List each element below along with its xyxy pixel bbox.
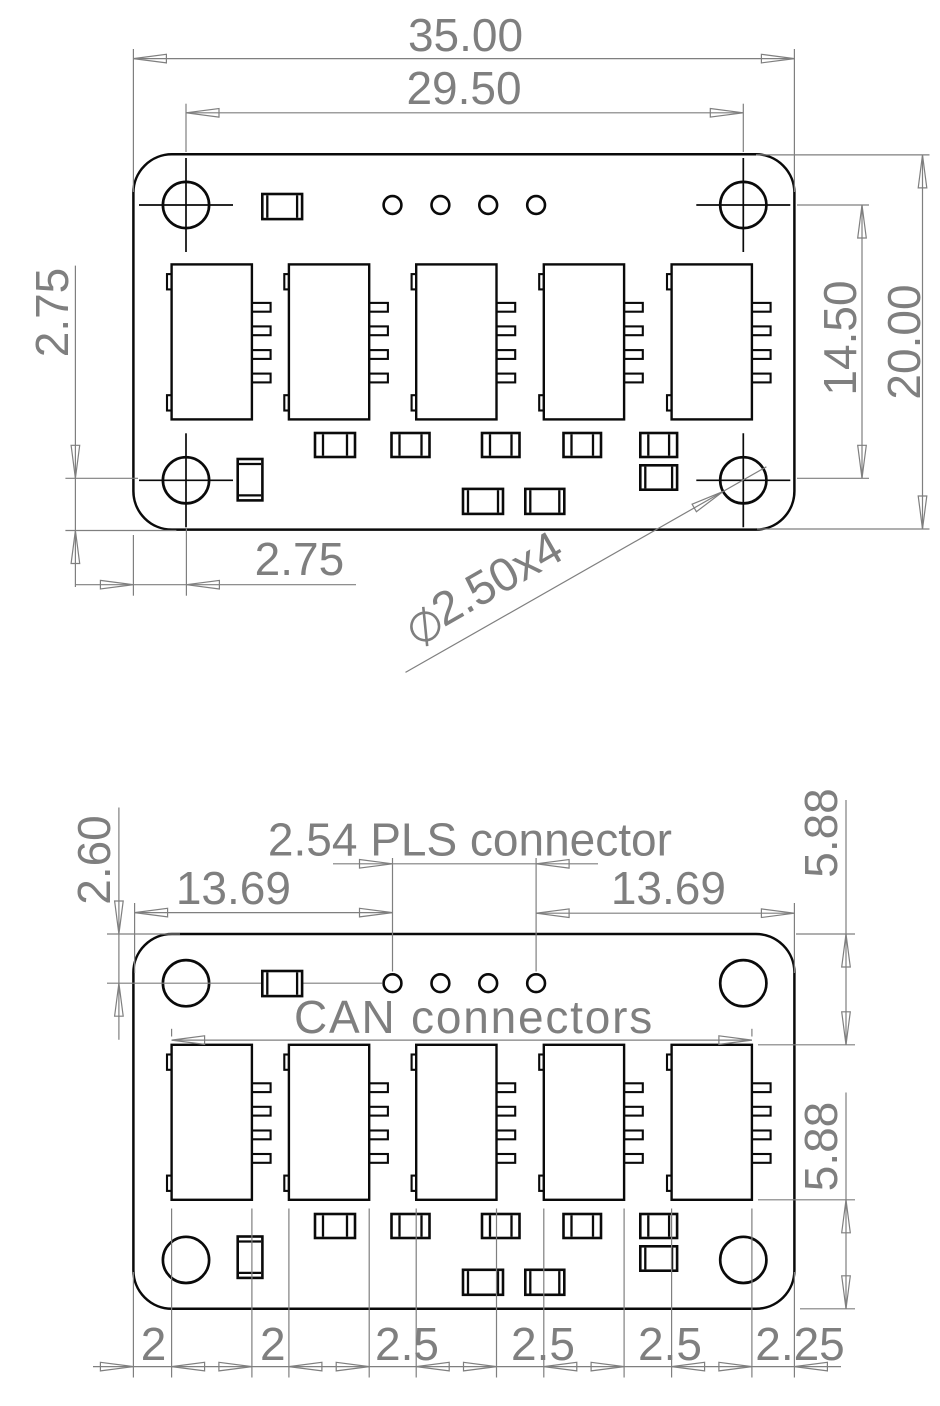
svg-text:29.50: 29.50 [406, 62, 521, 114]
svg-text:2.60: 2.60 [68, 815, 120, 905]
svg-text:5.88: 5.88 [795, 788, 847, 878]
svg-text:2.5: 2.5 [511, 1318, 575, 1370]
svg-text:2: 2 [260, 1318, 286, 1370]
svg-text:2.75: 2.75 [255, 533, 345, 585]
svg-text:CAN connectors: CAN connectors [294, 991, 654, 1043]
svg-text:2.54 PLS connector: 2.54 PLS connector [268, 813, 672, 865]
svg-text:2.75: 2.75 [26, 268, 78, 358]
svg-text:2.25: 2.25 [755, 1318, 845, 1370]
svg-text:5.88: 5.88 [795, 1102, 847, 1192]
svg-text:20.00: 20.00 [878, 284, 930, 399]
svg-text:2.5: 2.5 [638, 1318, 702, 1370]
svg-text:13.69: 13.69 [611, 862, 726, 914]
svg-text:2: 2 [141, 1318, 167, 1370]
svg-text:13.69: 13.69 [176, 862, 291, 914]
svg-text:35.00: 35.00 [408, 9, 523, 61]
svg-text:14.50: 14.50 [814, 280, 866, 395]
svg-text:2.5: 2.5 [375, 1318, 439, 1370]
